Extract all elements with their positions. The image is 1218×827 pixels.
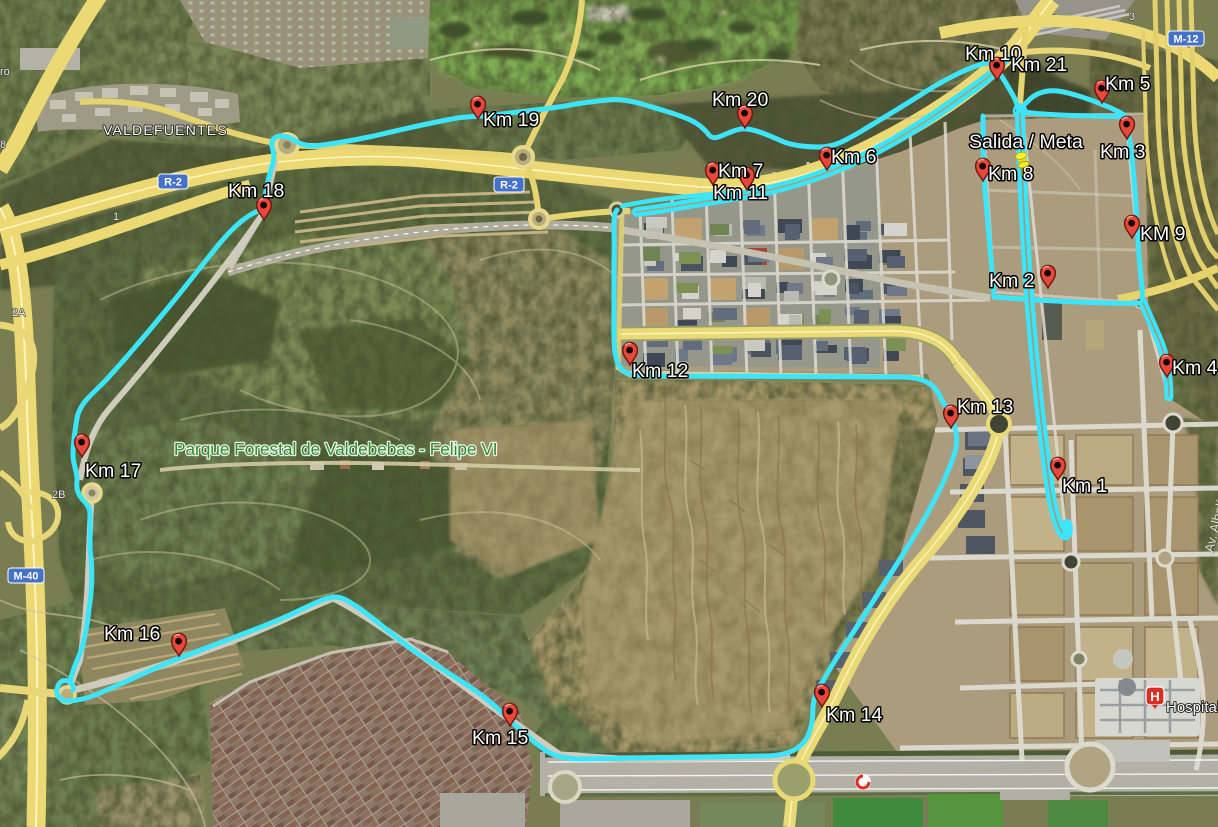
svg-text:VALDEFUENTES: VALDEFUENTES: [103, 123, 228, 139]
svg-text:M-12: M-12: [1173, 34, 1198, 46]
svg-text:Km 15: Km 15: [472, 727, 529, 749]
svg-text:R-2: R-2: [500, 180, 518, 192]
svg-text:Km 19: Km 19: [483, 109, 539, 131]
svg-text:Km 1: Km 1: [1062, 475, 1108, 497]
svg-text:Parque Forestal de Valdebebas: Parque Forestal de Valdebebas - Felipe V…: [174, 439, 498, 459]
svg-text:ro: ro: [0, 66, 10, 78]
svg-text:Km 6: Km 6: [831, 146, 877, 168]
svg-text:3: 3: [1129, 11, 1135, 23]
svg-text:Km 21: Km 21: [1011, 54, 1067, 76]
svg-text:Km 16: Km 16: [104, 623, 160, 645]
svg-text:Km 3: Km 3: [1100, 141, 1146, 163]
svg-text:Salida / Meta: Salida / Meta: [969, 131, 1083, 153]
svg-text:Km 14: Km 14: [826, 704, 883, 726]
svg-text:Km 18: Km 18: [228, 180, 284, 202]
svg-text:Km 4: Km 4: [1172, 357, 1218, 379]
svg-text:Km 20: Km 20: [712, 89, 769, 111]
svg-text:Km 17: Km 17: [85, 460, 141, 482]
svg-text:M-40: M-40: [13, 571, 38, 583]
svg-text:Hospital: Hospital: [1166, 699, 1218, 716]
svg-text:Km 5: Km 5: [1105, 73, 1151, 95]
svg-text:KM 9: KM 9: [1140, 223, 1186, 245]
svg-text:1: 1: [113, 211, 119, 223]
svg-text:Km 12: Km 12: [632, 360, 688, 382]
svg-text:R-2: R-2: [164, 177, 182, 189]
svg-text:2B: 2B: [52, 489, 65, 501]
svg-text:8: 8: [0, 139, 6, 151]
svg-text:H: H: [1150, 689, 1159, 704]
svg-text:Km 2: Km 2: [989, 270, 1035, 292]
svg-text:Km 7: Km 7: [718, 160, 764, 182]
svg-text:Km 11: Km 11: [713, 182, 768, 204]
svg-text:Km 13: Km 13: [957, 396, 1013, 418]
svg-text:2A: 2A: [12, 307, 26, 319]
